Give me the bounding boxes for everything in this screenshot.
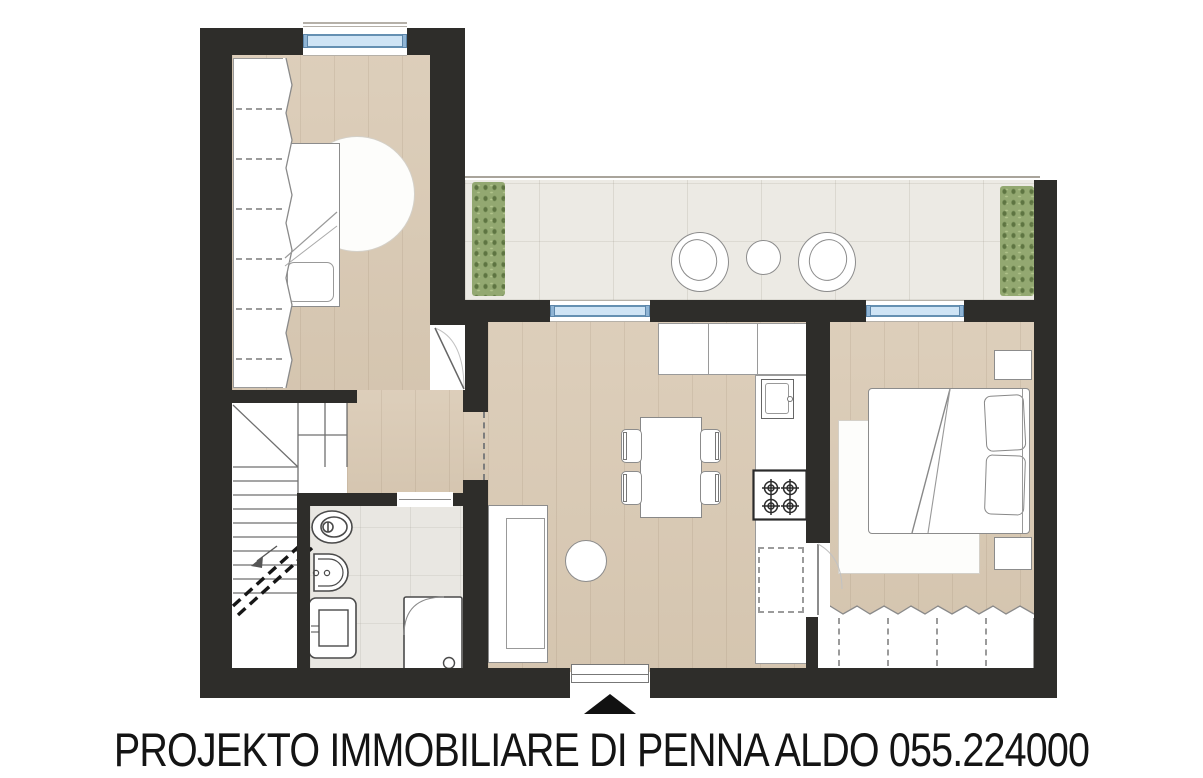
wardrobe-divider: [936, 618, 938, 666]
wardrobe-divider: [887, 618, 889, 666]
wall-bottom-a: [200, 668, 570, 698]
window-cap-left: [866, 305, 871, 317]
entrance-arrow: [584, 694, 636, 714]
bathroom-fixtures: [308, 505, 468, 680]
toilet: [312, 511, 352, 543]
wall-bathroom-top-b: [453, 493, 465, 506]
wall-bedroom1-bottom: [232, 390, 357, 403]
dining-chair: [700, 471, 721, 505]
dining-chair: [621, 429, 642, 463]
chair-back: [623, 432, 627, 460]
terrace-chair-right: [798, 232, 856, 292]
round-pouf: [565, 540, 607, 582]
wall-bedroom1-right: [430, 28, 465, 325]
bathroom-door-line: [399, 499, 451, 500]
wall-living-top-b: [648, 300, 868, 322]
sink-basin: [765, 383, 789, 414]
cabinet-divider: [708, 324, 709, 374]
terrace-hedge-right: [1000, 186, 1034, 296]
dining-table: [640, 417, 702, 518]
bedroom1-door-swing: [428, 323, 468, 395]
dining-chair: [700, 429, 721, 463]
kitchen-sink: [761, 379, 794, 419]
kitchen-upper-cabinets: [658, 323, 758, 375]
wall-left: [200, 28, 232, 698]
wall-bathroom-top-a: [297, 493, 397, 506]
wardrobe-divider: [236, 308, 282, 310]
window-glazing: [303, 34, 407, 48]
wardrobe-divider: [838, 618, 840, 666]
wardrobe-zigzag-edge: [816, 604, 1034, 618]
wall-bottom-b: [650, 668, 1057, 698]
sink-faucet: [787, 396, 793, 402]
window-living: [550, 300, 650, 322]
bedroom2-door-leaf: [802, 541, 846, 621]
wardrobe-divider: [236, 258, 282, 260]
chair-back: [623, 474, 627, 502]
chair-back: [715, 432, 719, 460]
dining-chair: [621, 471, 642, 505]
window-bedroom1: [303, 26, 407, 56]
entrance-threshold: [571, 664, 649, 683]
wardrobe-bedroom2: [816, 614, 1034, 670]
terrace-hedge-left: [472, 182, 505, 296]
duvet-fold-lines: [866, 386, 1034, 538]
window-cap-left: [550, 305, 555, 317]
window-glazing: [866, 305, 964, 317]
wall-living-top-a: [460, 300, 550, 322]
terrace-railing-line: [465, 176, 1040, 178]
wall-living-top-c: [962, 300, 1035, 322]
wardrobe-divider: [236, 158, 282, 160]
sofa-seat: [506, 518, 545, 649]
window-bedroom2: [866, 300, 964, 322]
terrace-chair-left: [671, 232, 729, 292]
nightstand-top: [994, 350, 1032, 380]
wall-living-left-lower: [463, 480, 488, 672]
bed-fold-lines: [281, 141, 343, 311]
window-cap-right: [959, 305, 964, 317]
window-cap-left: [303, 34, 308, 48]
corridor-floor: [347, 390, 463, 500]
wardrobe-divider: [236, 108, 282, 110]
window-glazing: [550, 305, 650, 317]
sofa: [488, 505, 548, 663]
kitchen-corner-cabinet: [757, 323, 808, 375]
passage-dashed-line: [483, 412, 485, 480]
nightstand-bottom: [994, 537, 1032, 570]
chair-back: [715, 474, 719, 502]
caption-text: PROJEKTO IMMOBILIARE DI PENNA ALDO 055.2…: [96, 724, 1107, 776]
wall-top-a: [200, 28, 305, 55]
terrace-side-table: [746, 240, 781, 275]
wardrobe-divider: [236, 358, 282, 360]
wall-living-bedroom: [806, 322, 830, 543]
wall-living-bedroom-lower: [806, 617, 818, 668]
wall-stairs-bathroom: [297, 493, 310, 672]
window-sill-line: [303, 22, 407, 24]
terrace-chair-cushion: [673, 234, 722, 286]
window-cap-right: [402, 34, 407, 48]
window-cap-right: [645, 305, 650, 317]
wall-right: [1034, 180, 1057, 698]
washbasin: [309, 598, 356, 658]
wardrobe-divider: [236, 208, 282, 210]
built-in-appliance: [758, 547, 804, 613]
threshold-line: [572, 674, 648, 675]
terrace-floor: [465, 180, 1035, 300]
wardrobe-divider: [985, 618, 987, 666]
cooktop: [752, 469, 808, 521]
shower: [404, 597, 462, 676]
floor-plan-image: PROJEKTO IMMOBILIARE DI PENNA ALDO 055.2…: [0, 0, 1203, 778]
terrace-chair-cushion: [804, 235, 852, 285]
